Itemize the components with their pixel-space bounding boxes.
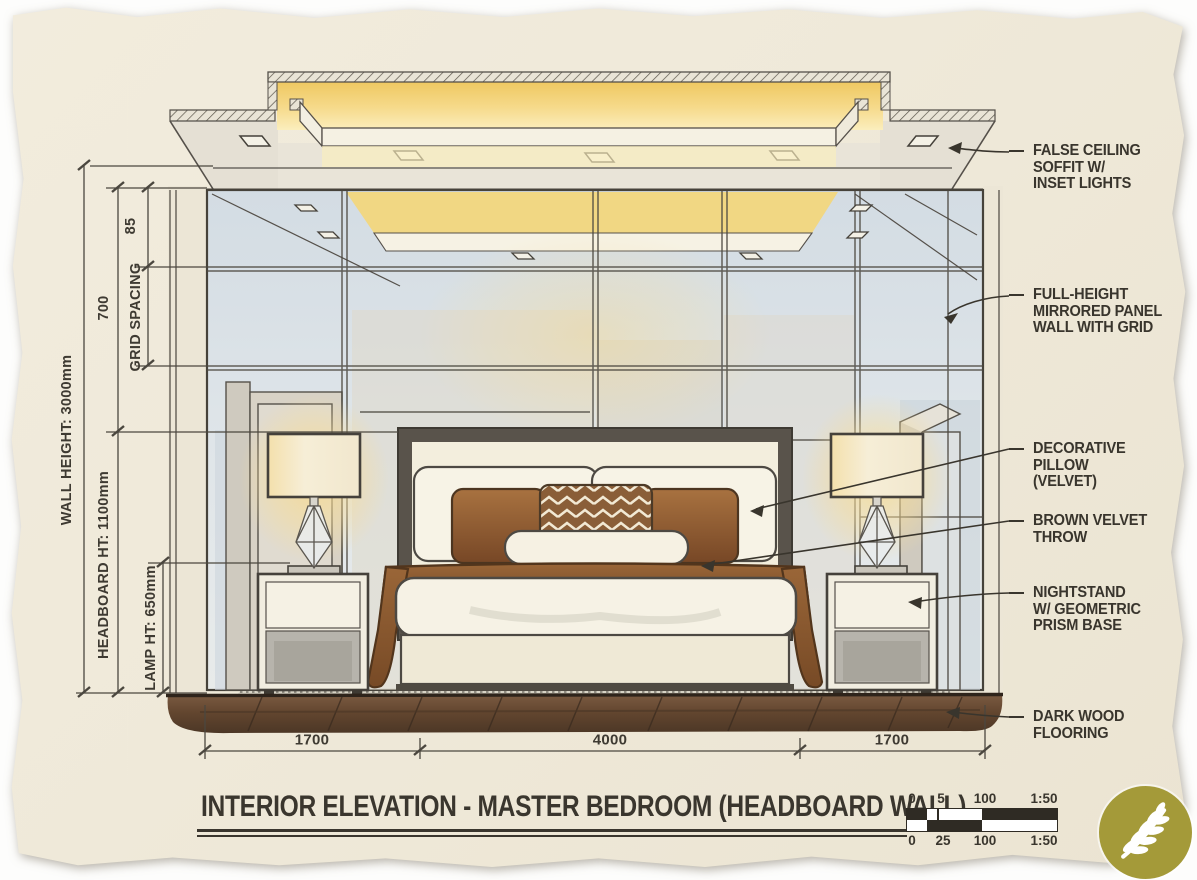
dim-85: 85 <box>123 218 139 235</box>
lamp-shade <box>268 434 360 497</box>
dim-lamp-height: LAMP HT: 650mm <box>143 565 159 691</box>
dim-grid-spacing: GRID SPACING <box>128 263 144 372</box>
callout-dash <box>1009 592 1024 594</box>
studio-logo <box>1099 786 1192 879</box>
dim-4000: 4000 <box>593 732 628 749</box>
callout-line: SOFFIT W/ <box>1033 160 1141 177</box>
title-underline-thin <box>197 835 907 837</box>
callout-flooring: DARK WOOD FLOORING <box>1033 709 1124 742</box>
callout-decorative-pillow: DECORATIVE PILLOW (VELVET) <box>1033 441 1126 491</box>
screenshot-stage: WALL HEIGHT: 3000mm 700 HEADBOARD HT: 11… <box>0 0 1197 880</box>
scale-bar-graphic <box>906 808 1058 832</box>
callout-line: DECORATIVE <box>1033 441 1126 458</box>
callout-line: MIRRORED PANEL <box>1033 304 1162 321</box>
scale-label: 25 <box>935 833 950 848</box>
callout-dash <box>1009 448 1024 450</box>
dim-1700-right: 1700 <box>875 732 910 749</box>
callout-line: NIGHTSTAND <box>1033 585 1141 602</box>
callout-line: DARK WOOD <box>1033 709 1124 726</box>
scale-label: 100 <box>974 833 997 848</box>
scale-label: 1:50 <box>1030 791 1057 806</box>
callout-line: INSET LIGHTS <box>1033 176 1141 193</box>
bolster-pillow <box>505 531 688 564</box>
cove-light <box>268 72 890 167</box>
callout-line: WALL WITH GRID <box>1033 320 1162 337</box>
callout-false-ceiling: FALSE CEILING SOFFIT W/ INSET LIGHTS <box>1033 143 1141 193</box>
scale-label: 1:50 <box>1030 833 1057 848</box>
callout-dash <box>1009 294 1024 296</box>
callout-dash <box>1009 150 1024 152</box>
pillows <box>414 467 776 564</box>
callout-line: PILLOW <box>1033 458 1126 475</box>
mattress-duvet <box>396 578 796 636</box>
callout-line: W/ GEOMETRIC <box>1033 602 1141 619</box>
callout-line: FULL-HEIGHT <box>1033 287 1162 304</box>
dim-700: 700 <box>96 295 112 320</box>
callout-line: PRISM BASE <box>1033 618 1141 635</box>
scale-label: 0 <box>908 791 916 806</box>
drawing-title: INTERIOR ELEVATION - MASTER BEDROOM (HEA… <box>201 790 966 824</box>
callout-dash <box>1009 716 1024 718</box>
scale-label: 5 <box>937 791 945 806</box>
scale-label: 0 <box>908 833 916 848</box>
nightstand-right <box>827 566 937 694</box>
bed-base <box>401 635 789 684</box>
dim-1700-left: 1700 <box>295 732 330 749</box>
callout-line: FALSE CEILING <box>1033 143 1141 160</box>
nightstand-left <box>258 566 368 694</box>
callout-line: FLOORING <box>1033 726 1124 743</box>
bed <box>368 428 822 693</box>
callout-dash <box>1009 520 1024 522</box>
scale-label: 100 <box>974 791 997 806</box>
wheat-branch-icon <box>1099 786 1192 879</box>
callout-line: (VELVET) <box>1033 474 1126 491</box>
callout-mirror-wall: FULL-HEIGHT MIRRORED PANEL WALL WITH GRI… <box>1033 287 1162 337</box>
callout-velvet-throw: BROWN VELVET THROW <box>1033 513 1147 546</box>
dark-wood-floor <box>166 695 1003 734</box>
dim-wall-height: WALL HEIGHT: 3000mm <box>59 355 75 526</box>
callout-line: BROWN VELVET <box>1033 513 1147 530</box>
title-underline <box>197 829 907 832</box>
dim-headboard-height: HEADBOARD HT: 1100mm <box>96 471 112 659</box>
callout-nightstand: NIGHTSTAND W/ GEOMETRIC PRISM BASE <box>1033 585 1141 635</box>
callout-line: THROW <box>1033 530 1147 547</box>
